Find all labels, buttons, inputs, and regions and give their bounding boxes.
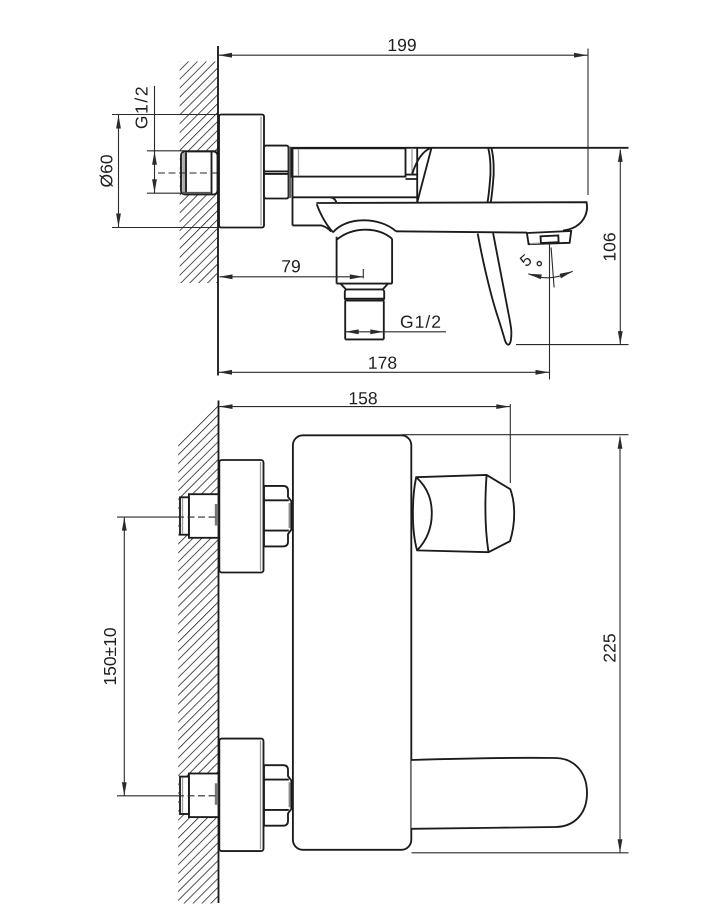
- svg-text:178: 178: [368, 353, 397, 373]
- svg-text:199: 199: [387, 35, 416, 55]
- svg-text:150±10: 150±10: [100, 627, 120, 686]
- svg-text:G1/2: G1/2: [132, 85, 152, 129]
- svg-text:Ø60: Ø60: [97, 154, 117, 187]
- svg-text:158: 158: [348, 388, 377, 408]
- svg-text:79: 79: [281, 256, 300, 276]
- svg-text:G1/2: G1/2: [400, 312, 442, 332]
- svg-text:225: 225: [600, 633, 620, 662]
- svg-text:106: 106: [600, 232, 620, 261]
